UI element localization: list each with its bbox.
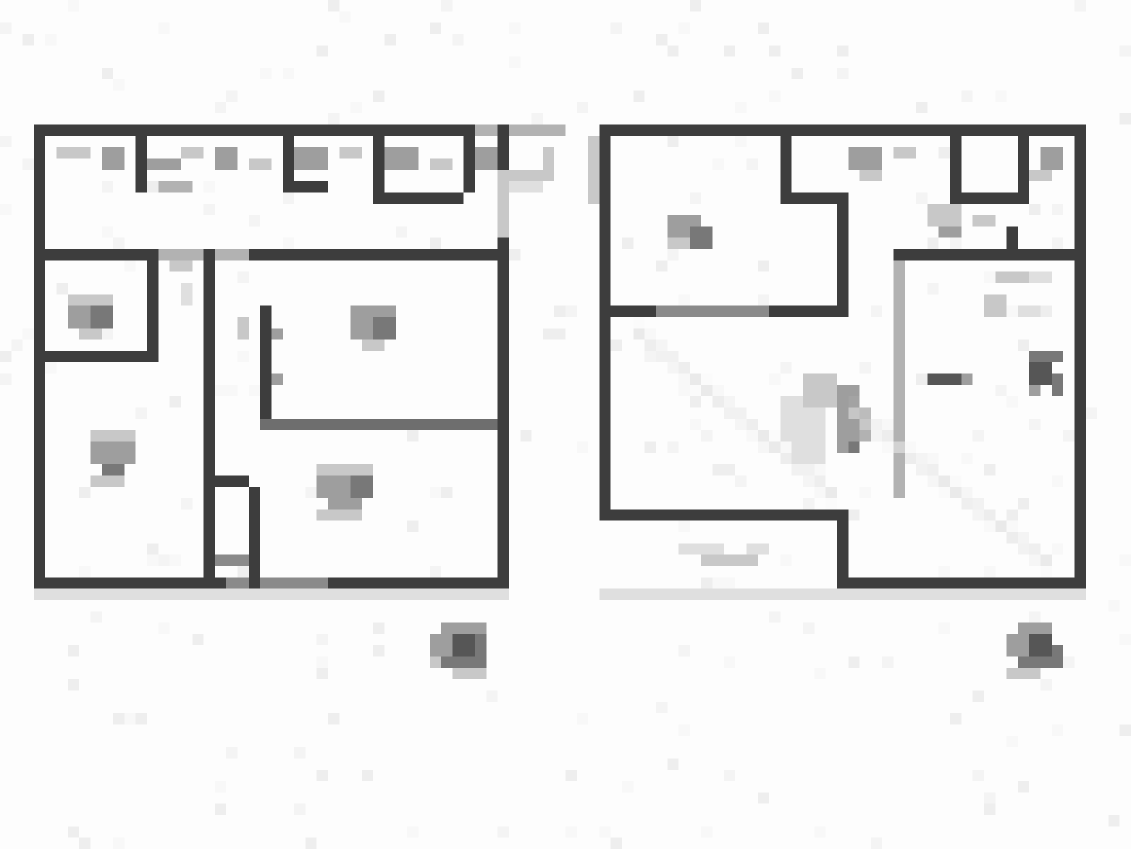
left-floor-caption-blob <box>428 618 506 678</box>
right-floor-plan <box>596 122 1090 600</box>
left-floor-plan <box>30 122 520 600</box>
right-floor-caption-blob <box>1000 618 1075 682</box>
pixelated-floor-plan-image <box>0 0 1131 849</box>
